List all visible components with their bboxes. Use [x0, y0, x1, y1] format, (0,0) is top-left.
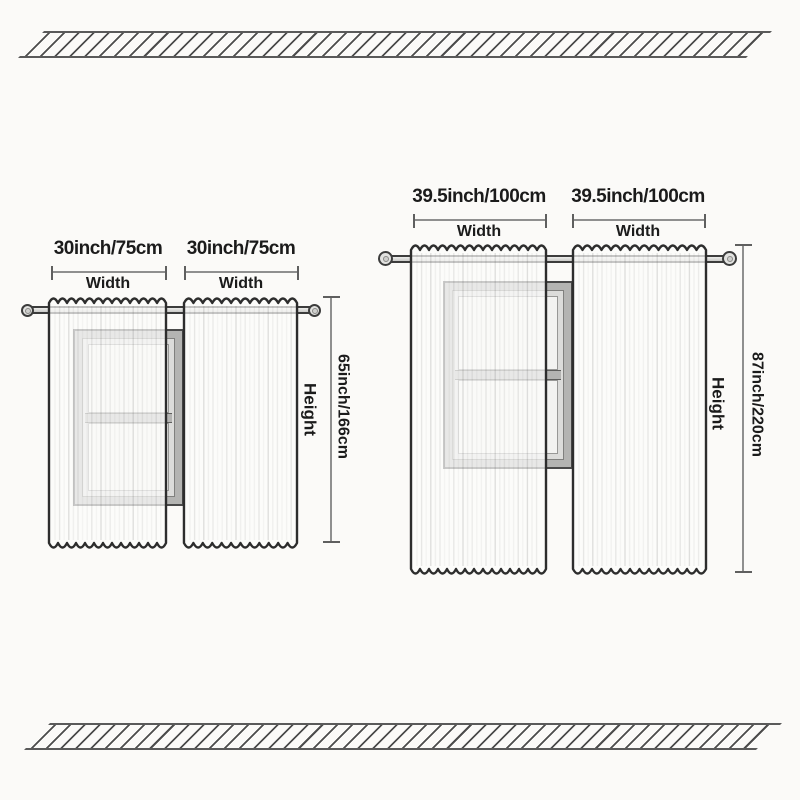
width-caption-1: Width [429, 223, 529, 241]
width-dimension-label-2: 30inch/75cm [171, 238, 311, 260]
height-dimension-label: 65inch/166cm [334, 354, 352, 459]
rod-finial-left [21, 304, 34, 317]
rod-finial-right [308, 304, 321, 317]
width-dimension-label-1: 39.5inch/100cm [409, 186, 549, 208]
width-caption-2: Width [191, 275, 291, 293]
height-caption: Height [708, 377, 727, 430]
rod-finial-left [378, 251, 393, 266]
curtain-panel-right [570, 239, 709, 580]
curtain-size-diagram: 30inch/75cm Width 30inch/75cm Width 65in… [0, 0, 800, 800]
height-caption: Height [300, 383, 319, 436]
curtain-panel-left [46, 292, 169, 554]
width-caption-1: Width [58, 275, 158, 293]
curtain-panel-right [181, 292, 300, 554]
width-caption-2: Width [588, 223, 688, 241]
width-dimension-label-1: 30inch/75cm [38, 238, 178, 260]
width-dimension-line-1 [414, 219, 546, 221]
curtain-panel-left [408, 239, 549, 580]
height-dimension-line [742, 245, 744, 572]
width-dimension-label-2: 39.5inch/100cm [568, 186, 708, 208]
ceiling-hatch-band [18, 31, 772, 58]
floor-hatch-band [24, 723, 782, 750]
rod-finial-right [722, 251, 737, 266]
width-dimension-line-1 [52, 271, 166, 273]
width-dimension-line-2 [185, 271, 298, 273]
width-dimension-line-2 [573, 219, 705, 221]
height-dimension-label: 87inch/220cm [748, 352, 766, 457]
height-dimension-line [330, 297, 332, 542]
